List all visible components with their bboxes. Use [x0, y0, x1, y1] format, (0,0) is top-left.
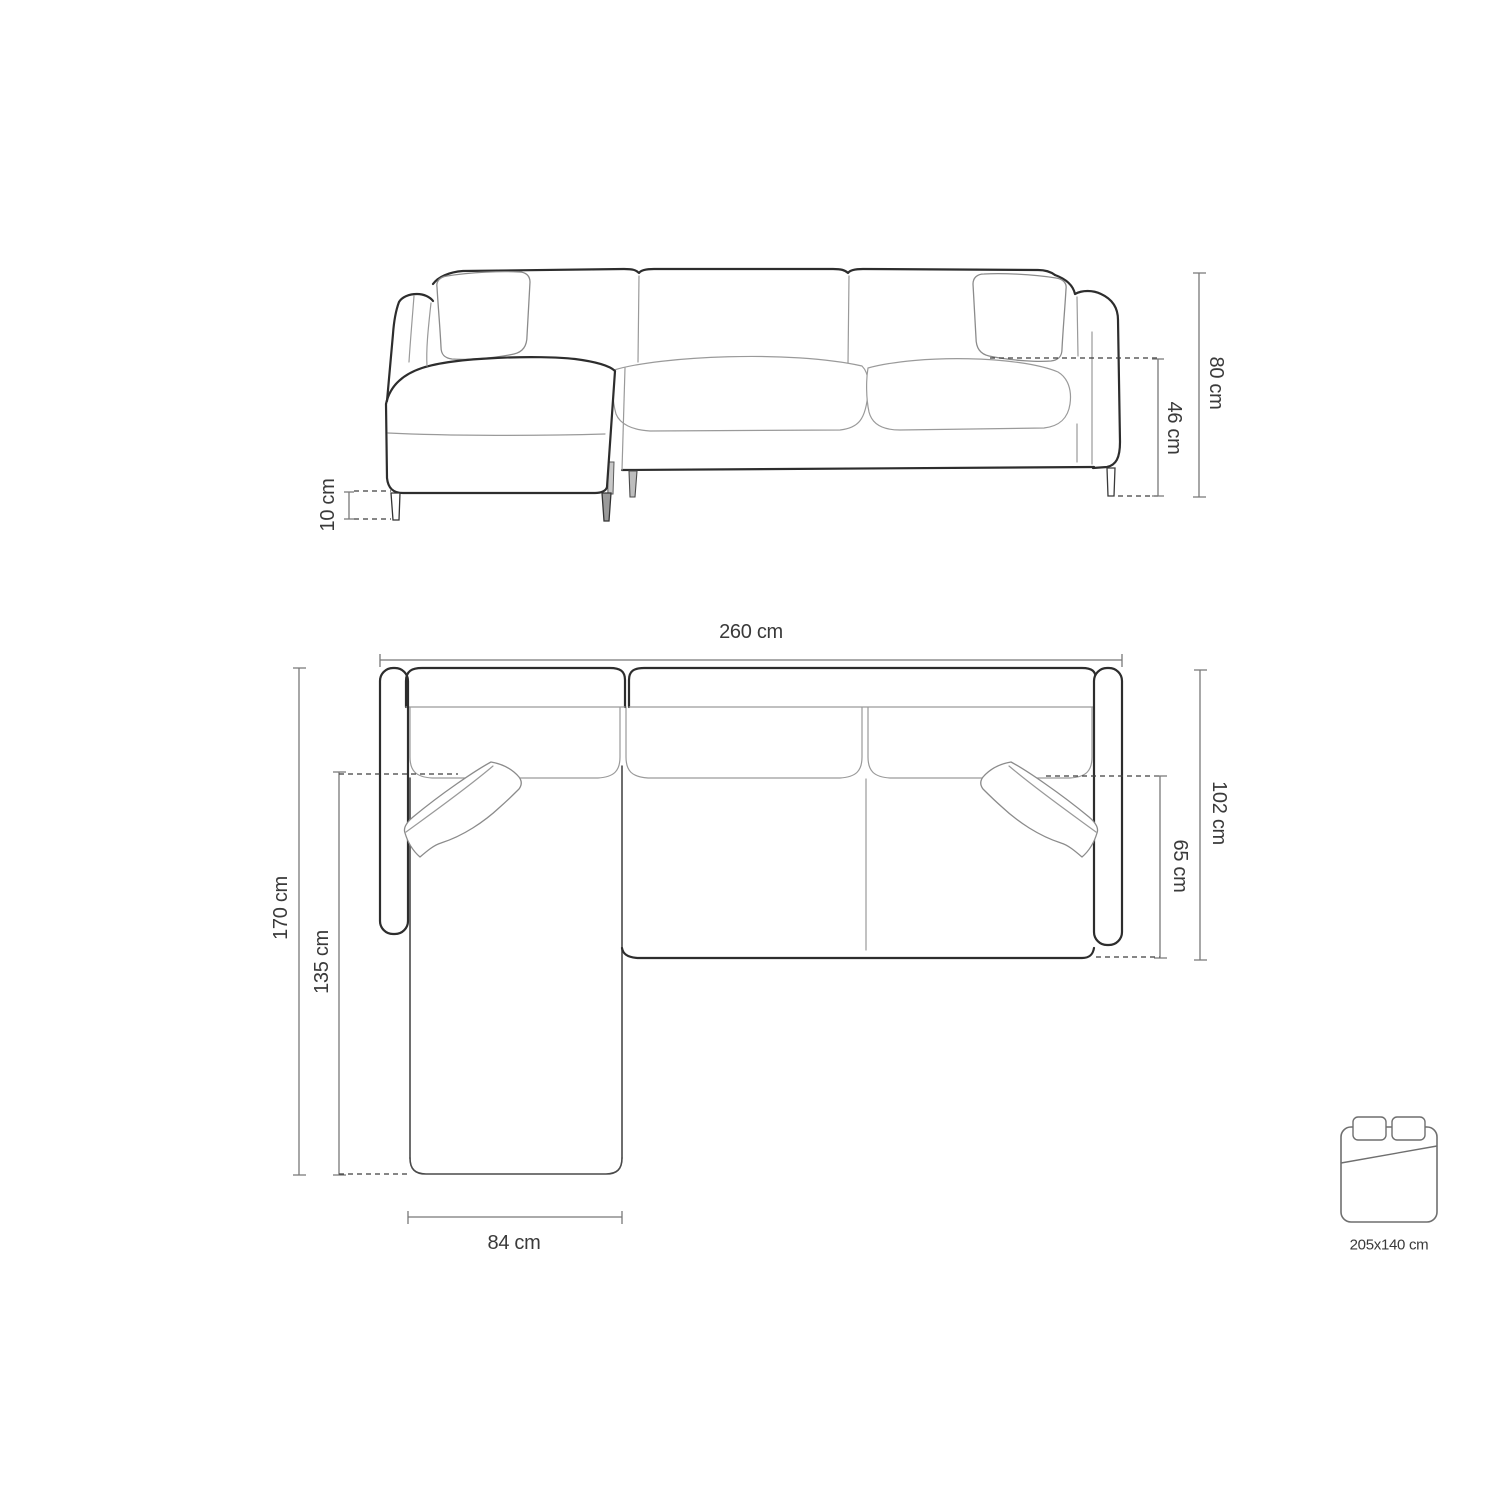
plan-back-cushion-3: [868, 707, 1092, 778]
seat-cushion-2-fill: [867, 359, 1071, 430]
right-leg: [1107, 468, 1115, 496]
bed-pillow-left: [1353, 1117, 1386, 1140]
chaise-right-leg: [602, 493, 611, 521]
dim-line-84: [408, 1211, 622, 1224]
left-armrest-seam: [409, 296, 431, 366]
top-view-dimensions: 260 cm 170 cm 135 cm 102 cm 65 cm 84 cm: [270, 621, 1230, 1254]
front-elevation-view: [386, 269, 1120, 521]
seat-height-label: 46 cm: [1163, 402, 1185, 455]
seat-depth-label: 65 cm: [1169, 840, 1191, 893]
seat-cushion-1-fill: [613, 356, 869, 431]
plan-seat-front-edge: [622, 948, 1094, 958]
sleeping-area-size-label: 205x140 cm: [1350, 1237, 1429, 1254]
plan-back-cushion-1: [410, 707, 620, 778]
right-armrest-inner-seam: [1077, 297, 1078, 356]
plan-backrest-left-fill: [406, 668, 625, 707]
dim-line-46: [1152, 359, 1164, 496]
overall-width-label: 260 cm: [719, 621, 783, 643]
overall-height-label: 80 cm: [1205, 357, 1227, 410]
chaise-left-leg: [391, 493, 400, 520]
plan-backrest-right-fill: [629, 668, 1096, 707]
dim-line-260: [380, 654, 1122, 667]
plan-back-cushion-2: [626, 707, 862, 778]
sleeping-area: 205x140 cm: [1341, 1117, 1437, 1254]
leg-height-label: 10 cm: [317, 479, 339, 532]
plan-right-armrest: [1094, 668, 1122, 945]
body-depth-label: 102 cm: [1208, 781, 1230, 845]
dim-line-80: [1193, 273, 1206, 497]
chaise-depth-label: 135 cm: [311, 930, 333, 994]
bed-body: [1341, 1127, 1437, 1222]
chaise-width-label: 84 cm: [488, 1232, 541, 1254]
front-left-pillow: [437, 272, 530, 360]
dim-line-170: [293, 668, 306, 1175]
plan-chaise-bottom: [410, 1158, 622, 1174]
chaise-fill: [386, 357, 615, 493]
dim-line-135: [333, 772, 346, 1175]
diagram-svg: 80 cm 46 cm 10 cm: [0, 0, 1500, 1500]
dim-line-102: [1194, 670, 1207, 960]
dim-line-65: [1154, 776, 1167, 958]
sofa-dimension-diagram: 80 cm 46 cm 10 cm: [0, 0, 1500, 1500]
sofa-bottom-edge: [622, 467, 1094, 470]
bed-icon: [1341, 1117, 1437, 1222]
top-plan-view: [380, 668, 1122, 1174]
plan-left-armrest: [380, 668, 408, 934]
front-right-pillow: [973, 274, 1066, 362]
front-left-leg: [629, 471, 637, 497]
overall-depth-label: 170 cm: [270, 876, 292, 940]
bed-pillow-right: [1392, 1117, 1425, 1140]
dim-line-10: [344, 492, 354, 519]
